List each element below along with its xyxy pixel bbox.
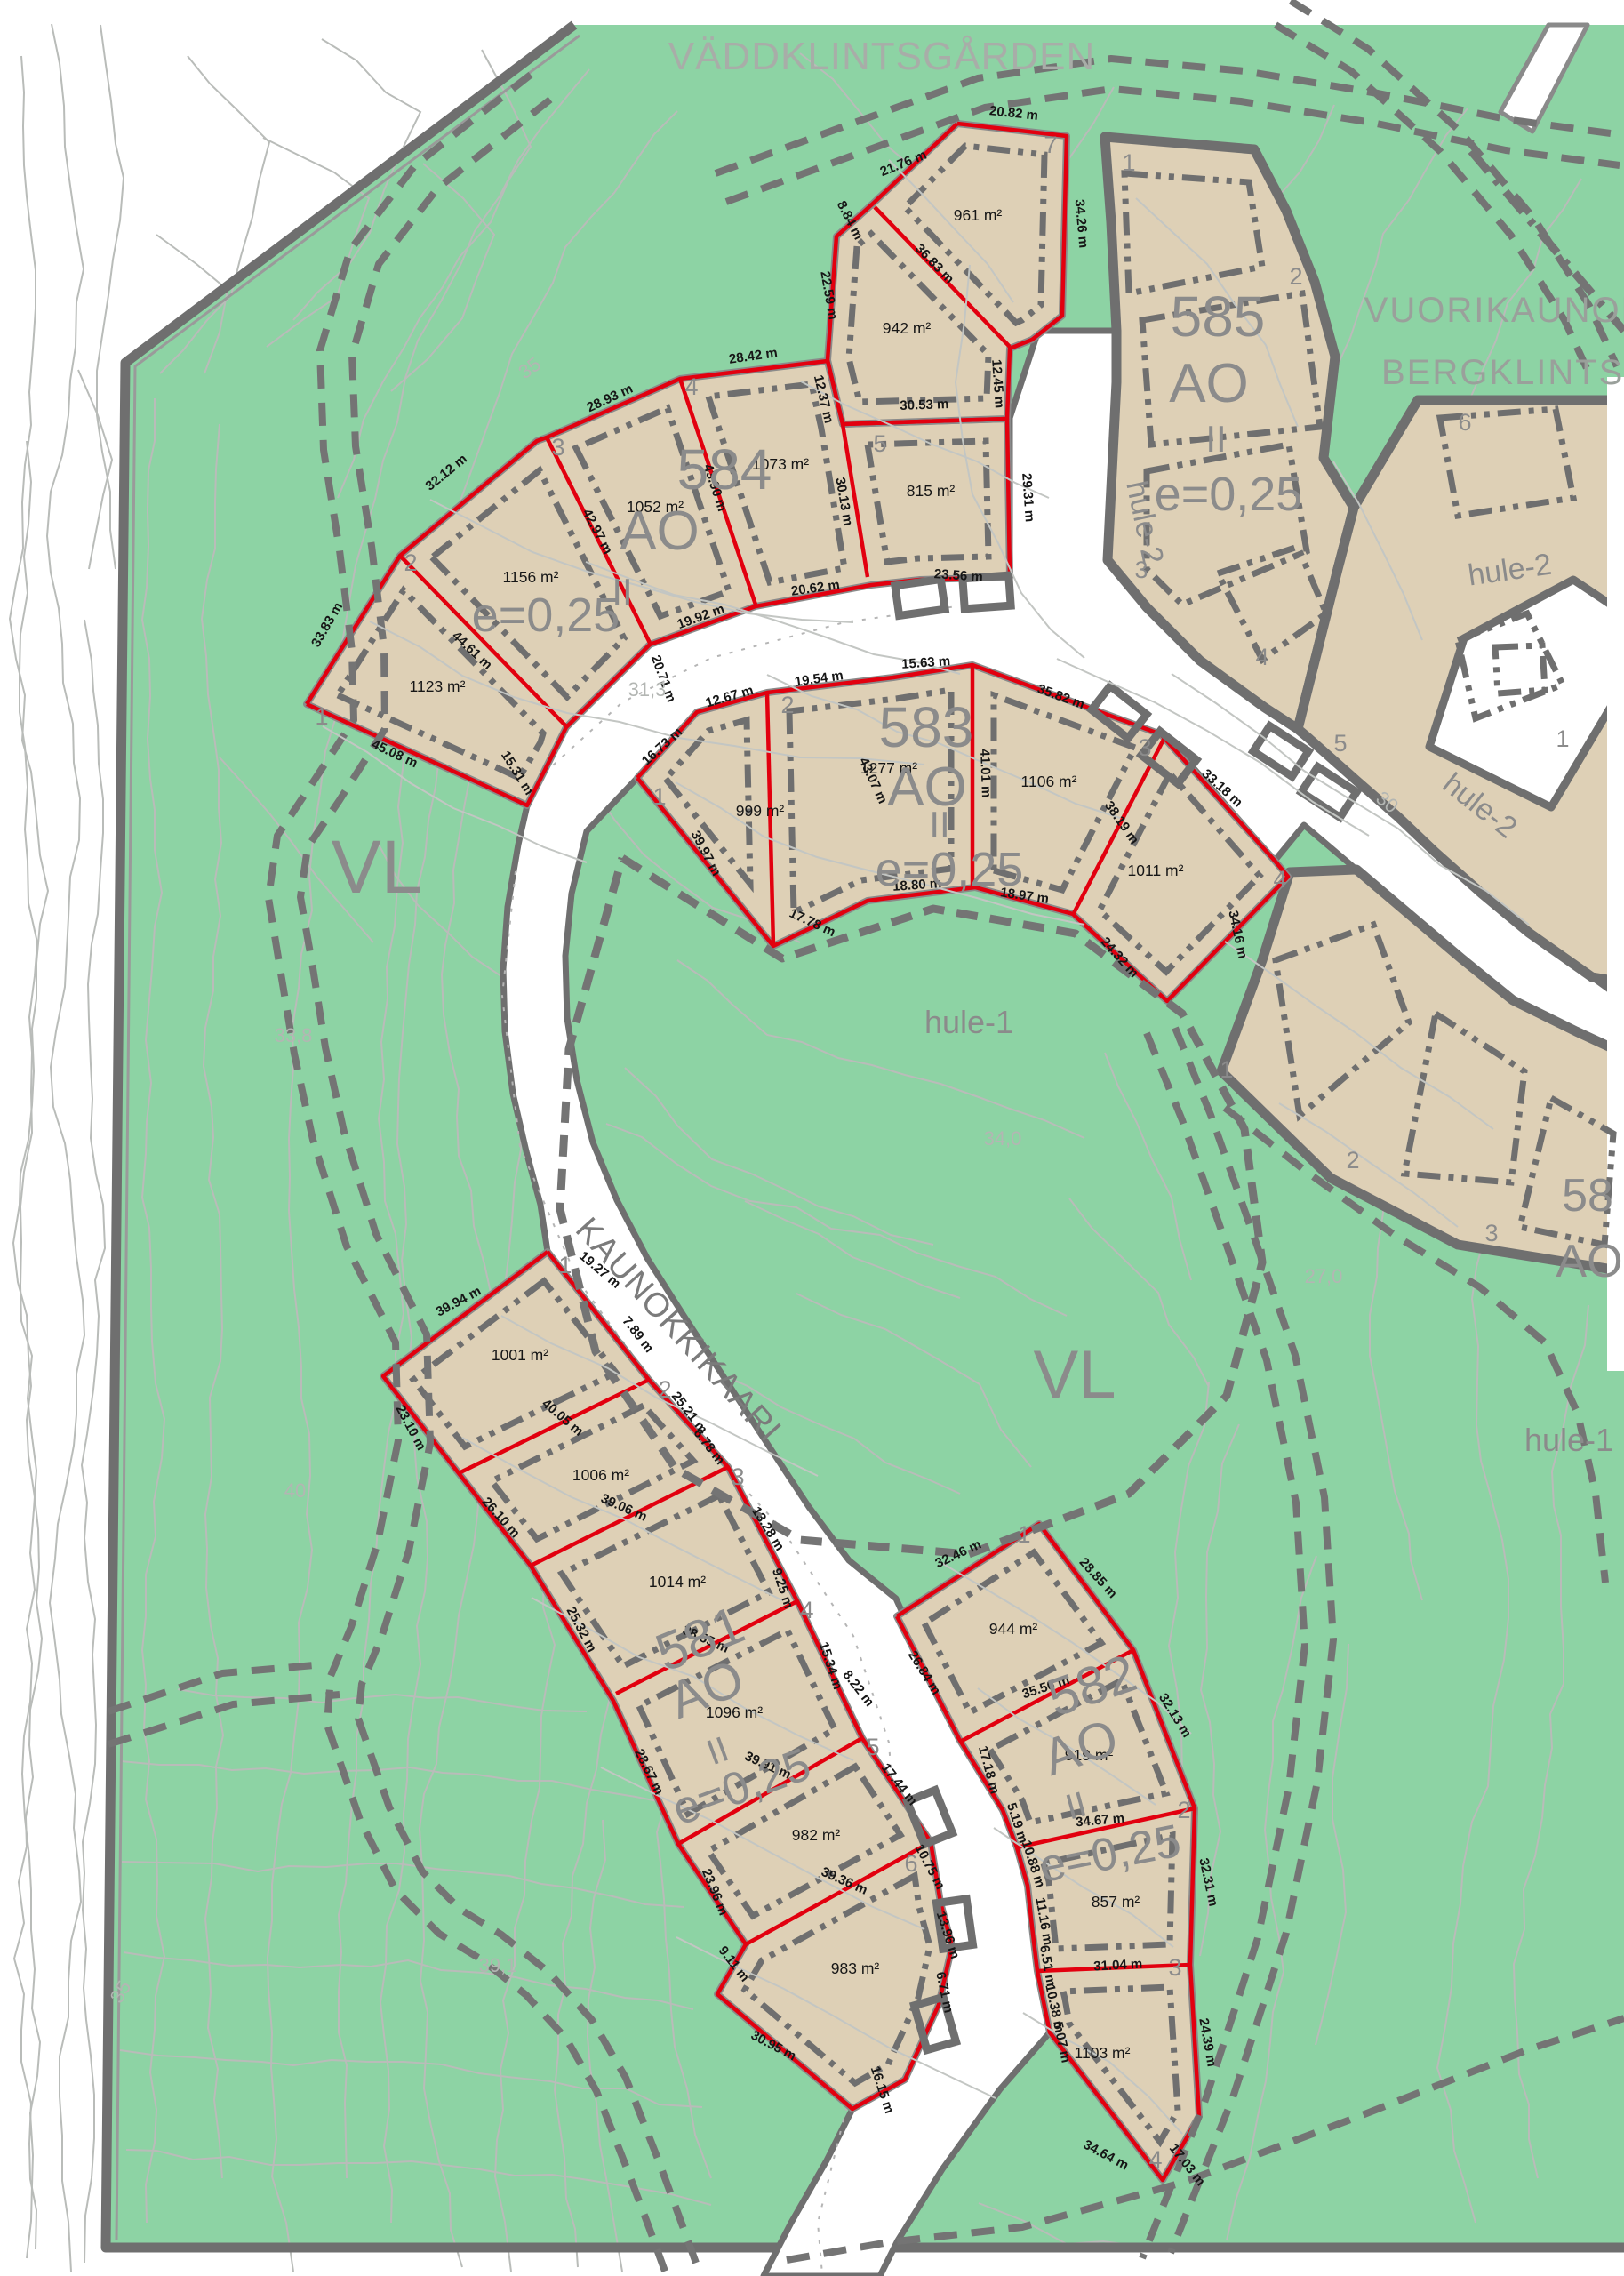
svg-text:961 m²: 961 m² (954, 206, 1003, 224)
svg-text:41.01 m: 41.01 m (977, 749, 994, 798)
svg-text:AO: AO (887, 757, 967, 818)
svg-text:2: 2 (1346, 1147, 1359, 1174)
svg-text:1014 m²: 1014 m² (649, 1573, 706, 1591)
svg-text:585: 585 (1171, 284, 1266, 349)
svg-text:1156 m²: 1156 m² (503, 568, 559, 586)
svg-text:1123 m²: 1123 m² (410, 677, 466, 695)
svg-text:6: 6 (904, 1850, 917, 1877)
svg-text:VÄDDKLINTSGÅRDEN: VÄDDKLINTSGÅRDEN (668, 35, 1096, 78)
svg-text:5: 5 (873, 430, 886, 457)
svg-text:6: 6 (1458, 409, 1471, 436)
svg-text:3: 3 (1138, 734, 1151, 761)
svg-text:hule-1: hule-1 (924, 1004, 1013, 1040)
svg-text:VL: VL (1034, 1337, 1116, 1413)
svg-text:AO: AO (1556, 1236, 1622, 1287)
svg-text:7: 7 (1044, 132, 1057, 158)
svg-text:VUORIKAUNOKI: VUORIKAUNOKI (1364, 291, 1624, 330)
svg-text:1: 1 (1017, 1521, 1030, 1548)
svg-text:2: 2 (780, 692, 794, 718)
svg-text:hule-1: hule-1 (1524, 1422, 1613, 1458)
svg-text:1001 m²: 1001 m² (492, 1346, 548, 1364)
svg-text:944 m²: 944 m² (989, 1620, 1038, 1638)
svg-text:1006 m²: 1006 m² (572, 1466, 629, 1484)
svg-text:27,0: 27,0 (1305, 1265, 1343, 1287)
svg-text:4: 4 (684, 373, 698, 400)
svg-text:2: 2 (404, 549, 417, 576)
svg-text:II: II (929, 804, 949, 845)
svg-text:857 m²: 857 m² (1092, 1893, 1140, 1911)
svg-text:5: 5 (1333, 730, 1347, 757)
svg-text:4: 4 (1148, 2146, 1162, 2173)
svg-text:3: 3 (1484, 1220, 1498, 1246)
svg-text:2: 2 (658, 1376, 671, 1403)
svg-text:1: 1 (315, 703, 328, 730)
svg-text:1: 1 (652, 783, 666, 810)
svg-text:58: 58 (1562, 1170, 1613, 1222)
svg-text:3: 3 (1168, 1954, 1181, 1981)
svg-text:3: 3 (551, 434, 564, 461)
svg-text:999 m²: 999 m² (736, 802, 785, 820)
svg-text:1: 1 (1556, 725, 1569, 752)
svg-text:VL: VL (332, 825, 423, 909)
svg-text:942 m²: 942 m² (883, 319, 932, 337)
svg-text:583: 583 (879, 695, 974, 759)
svg-text:1103 m²: 1103 m² (1075, 2044, 1131, 2062)
svg-text:33,8: 33,8 (275, 1024, 313, 1046)
svg-text:1011 m²: 1011 m² (1128, 862, 1184, 879)
svg-text:II: II (1205, 418, 1226, 460)
svg-text:31,3: 31,3 (628, 678, 667, 701)
svg-text:4: 4 (800, 1597, 813, 1623)
svg-text:e=0,25: e=0,25 (472, 589, 620, 642)
svg-text:4: 4 (1273, 866, 1286, 893)
svg-text:5: 5 (866, 1734, 879, 1760)
svg-text:1: 1 (558, 1252, 572, 1278)
svg-text:584: 584 (677, 437, 772, 501)
svg-text:BERGKLINTSB: BERGKLINTSB (1381, 353, 1624, 392)
svg-text:1: 1 (1220, 1056, 1233, 1083)
svg-text:1: 1 (1122, 149, 1135, 176)
svg-text:2: 2 (1177, 1797, 1190, 1823)
svg-text:815 m²: 815 m² (907, 482, 956, 500)
svg-text:4: 4 (1255, 644, 1268, 670)
svg-text:31.04 m: 31.04 m (1093, 1957, 1143, 1975)
svg-text:AO: AO (1169, 353, 1249, 414)
svg-text:30.53 m: 30.53 m (900, 397, 949, 413)
svg-text:e=0,25: e=0,25 (1155, 468, 1303, 521)
svg-text:1106 m²: 1106 m² (1021, 773, 1077, 790)
svg-text:AO: AO (620, 501, 700, 562)
svg-text:40: 40 (284, 1479, 306, 1502)
svg-text:3: 3 (731, 1463, 744, 1490)
svg-text:2: 2 (1289, 263, 1302, 290)
svg-text:34,0: 34,0 (984, 1127, 1022, 1150)
svg-text:39,1: 39,1 (479, 1954, 517, 1976)
svg-text:e=0,25: e=0,25 (876, 843, 1024, 896)
svg-text:983 m²: 983 m² (831, 1959, 880, 1977)
svg-text:982 m²: 982 m² (792, 1826, 841, 1844)
